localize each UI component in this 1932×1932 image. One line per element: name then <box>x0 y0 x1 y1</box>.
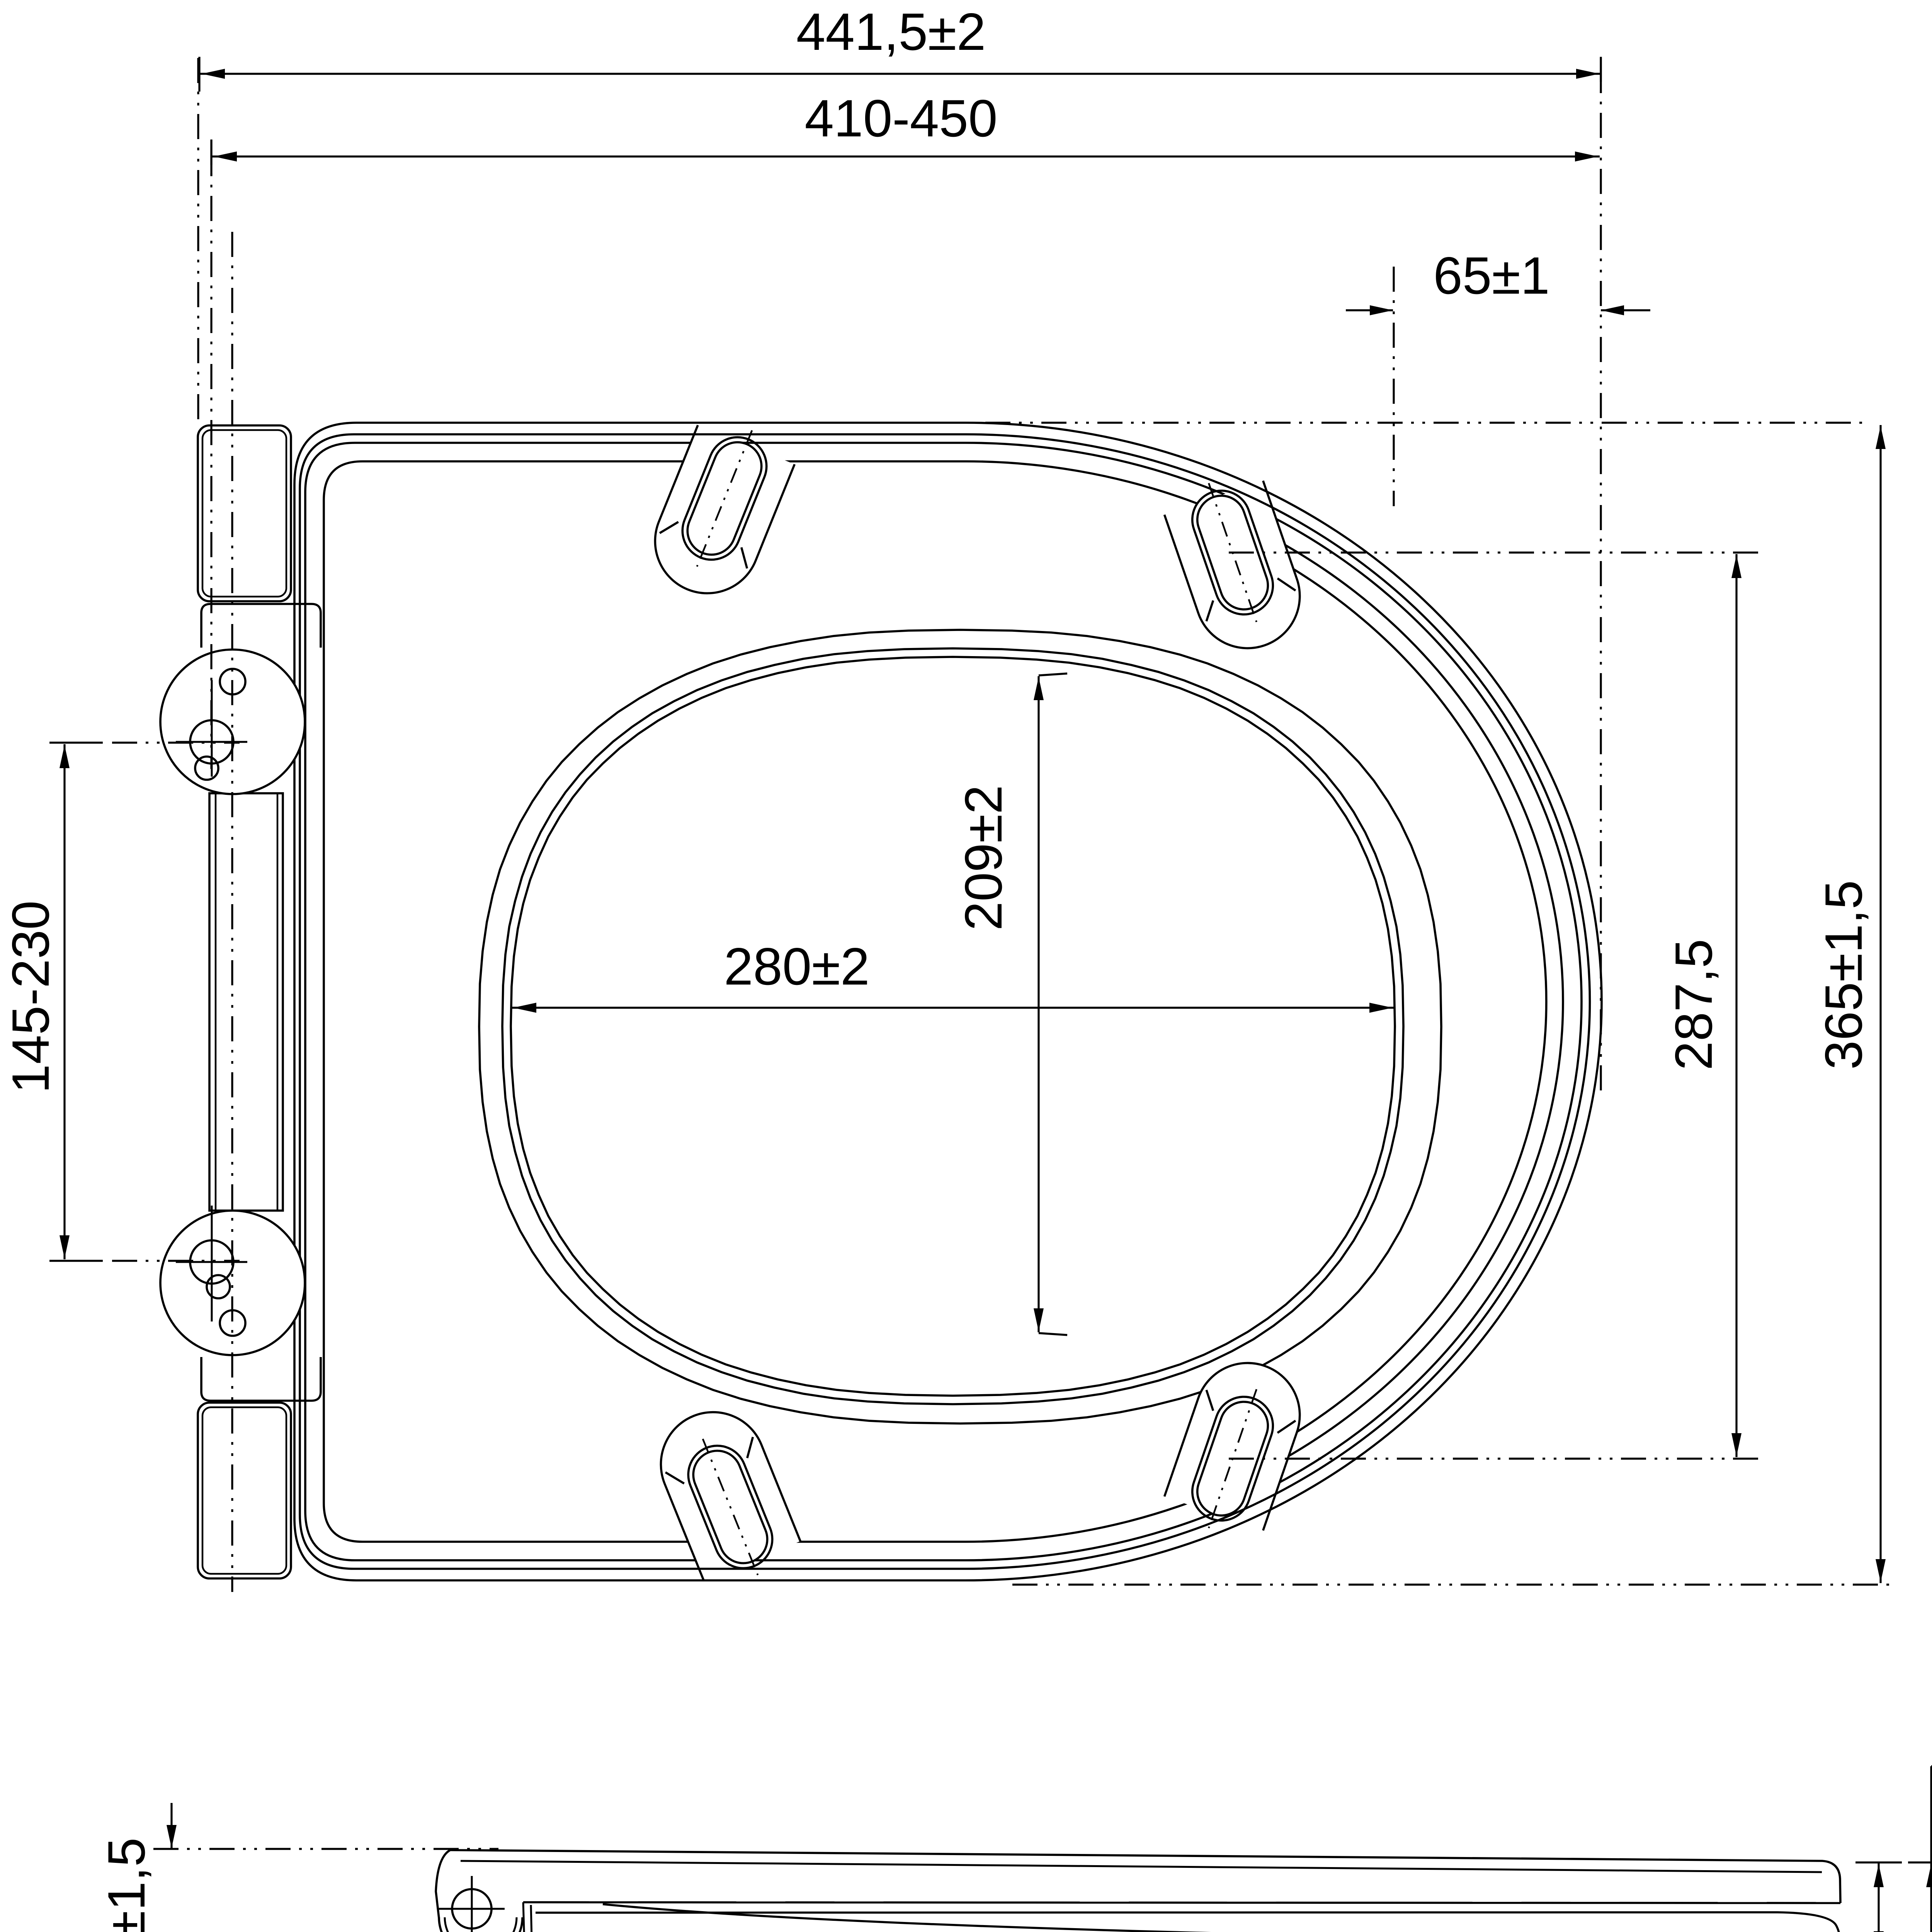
svg-text:287,5: 287,5 <box>1664 939 1723 1070</box>
svg-text:280±2: 280±2 <box>724 937 869 996</box>
svg-text:145-230: 145-230 <box>1 900 60 1093</box>
svg-text:441,5±2: 441,5±2 <box>796 2 986 61</box>
svg-text:40±1,5: 40±1,5 <box>97 1838 156 1932</box>
svg-text:65±1: 65±1 <box>1433 246 1550 305</box>
svg-text:410-450: 410-450 <box>804 89 997 148</box>
svg-text:365±1,5: 365±1,5 <box>1814 880 1873 1070</box>
svg-text:209±2: 209±2 <box>954 785 1013 930</box>
